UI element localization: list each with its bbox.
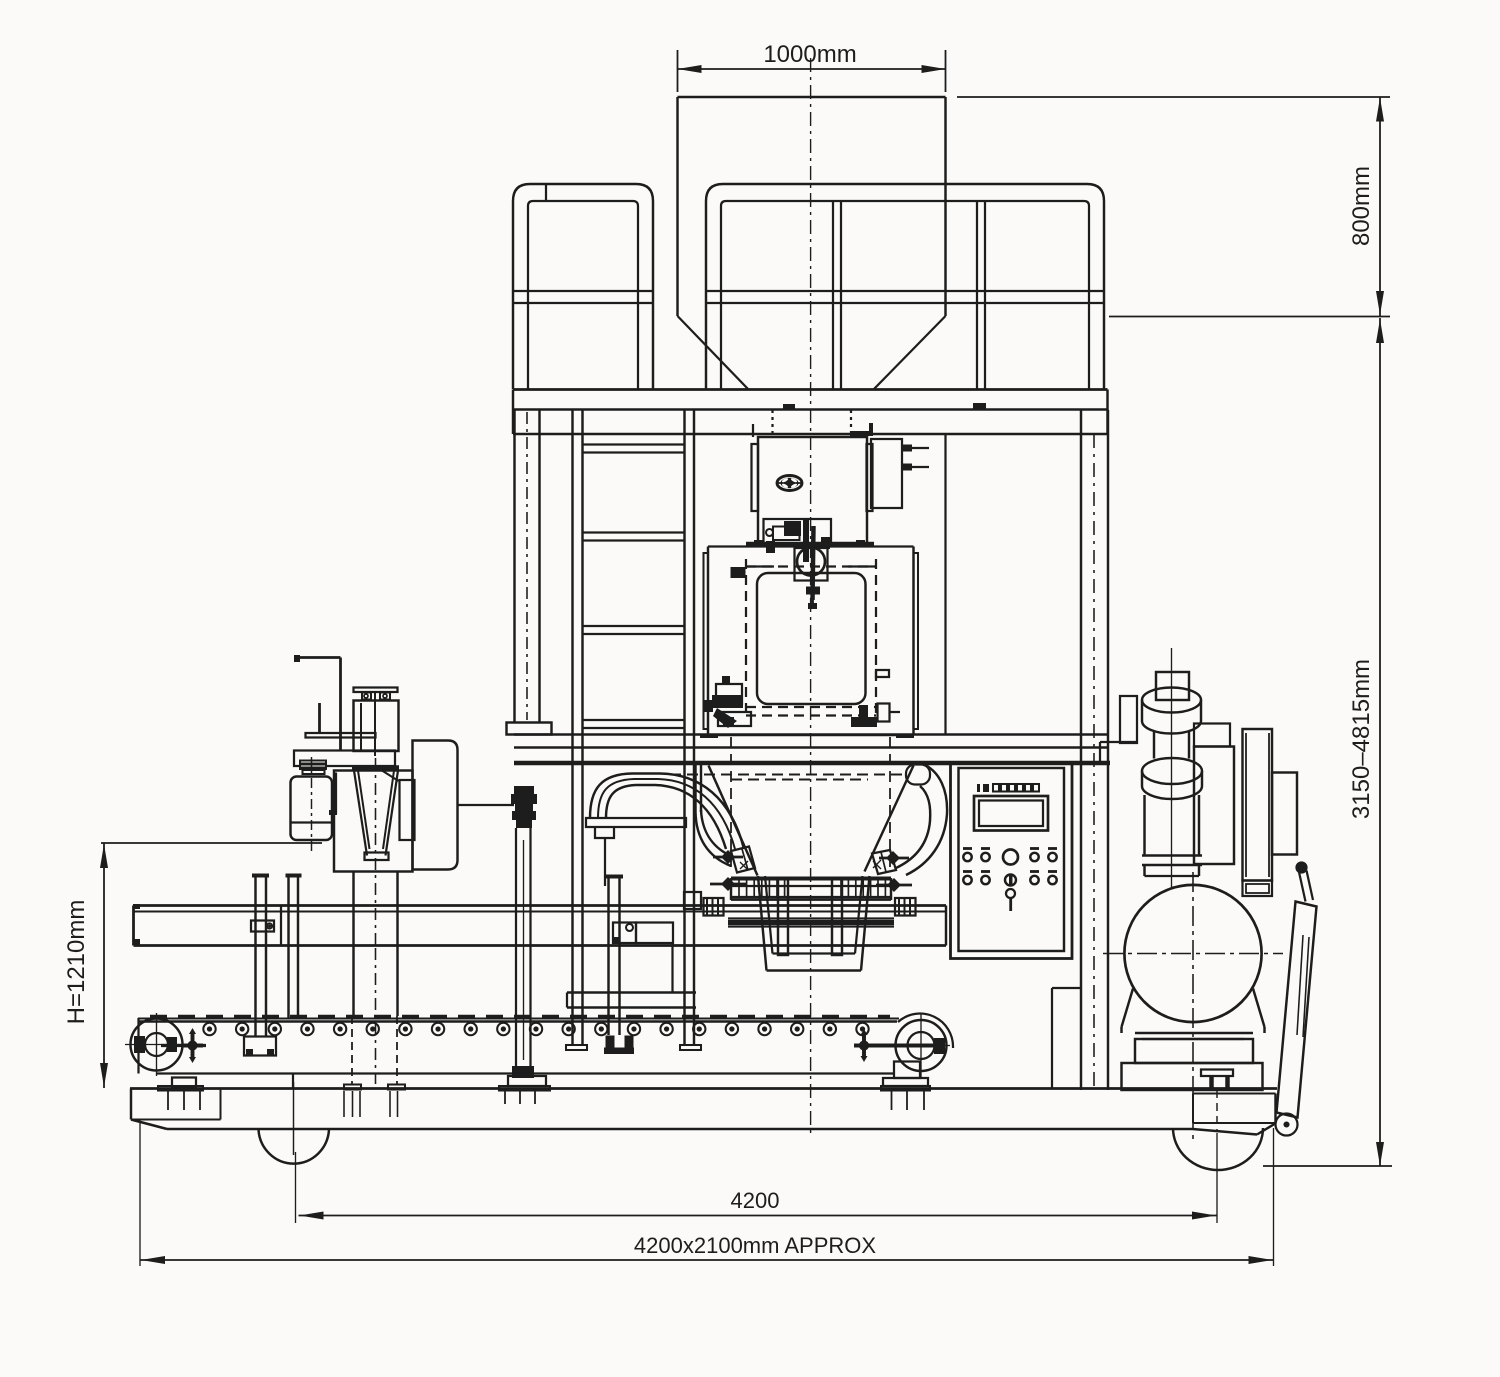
- svg-text:3150–4815mm: 3150–4815mm: [1348, 659, 1375, 819]
- svg-text:4200: 4200: [731, 1188, 780, 1213]
- svg-text:800mm: 800mm: [1348, 166, 1375, 246]
- svg-text:4200x2100mm APPROX: 4200x2100mm APPROX: [634, 1233, 876, 1258]
- svg-text:H=1210mm: H=1210mm: [63, 900, 90, 1025]
